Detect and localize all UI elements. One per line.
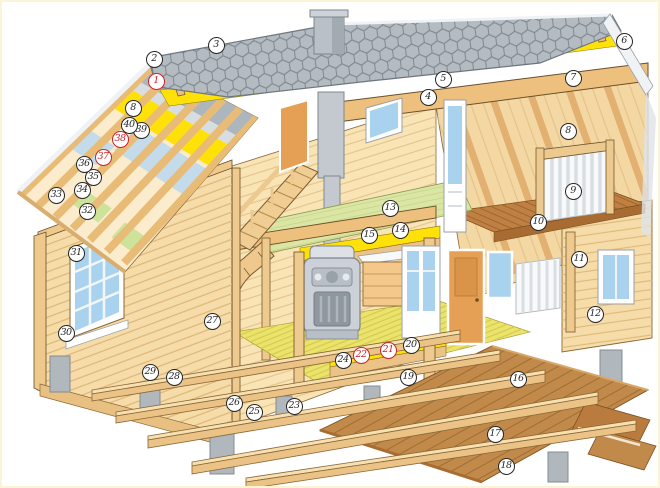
callout-marker-7: 7 bbox=[565, 70, 582, 87]
callout-marker-5: 5 bbox=[435, 71, 452, 88]
callout-marker-6: 6 bbox=[616, 33, 633, 50]
callout-marker-14: 14 bbox=[392, 222, 409, 239]
callout-marker-40: 40 bbox=[121, 117, 138, 134]
callout-marker-2: 2 bbox=[146, 51, 163, 68]
callout-marker-11: 11 bbox=[571, 251, 588, 268]
callout-marker-3: 3 bbox=[208, 37, 225, 54]
screenshot-root: 1234567889101112131415161718192021222324… bbox=[0, 0, 660, 488]
callout-marker-26: 26 bbox=[226, 395, 243, 412]
callout-marker-30: 30 bbox=[58, 325, 75, 342]
callout-marker-19: 19 bbox=[400, 369, 417, 386]
callout-marker-24: 24 bbox=[335, 352, 352, 369]
callout-marker-31: 31 bbox=[68, 245, 85, 262]
callout-marker-10: 10 bbox=[530, 214, 547, 231]
callout-marker-8: 8 bbox=[560, 123, 577, 140]
callout-marker-12: 12 bbox=[587, 306, 604, 323]
callout-marker-17: 17 bbox=[487, 426, 504, 443]
callout-layer: 1234567889101112131415161718192021222324… bbox=[0, 0, 660, 488]
callout-marker-18: 18 bbox=[498, 458, 515, 475]
callout-marker-28: 28 bbox=[166, 369, 183, 386]
callout-marker-36: 36 bbox=[76, 156, 93, 173]
callout-marker-21: 21 bbox=[380, 342, 397, 359]
callout-marker-22: 22 bbox=[353, 347, 370, 364]
callout-marker-20: 20 bbox=[403, 337, 420, 354]
callout-marker-25: 25 bbox=[246, 404, 263, 421]
callout-marker-4: 4 bbox=[420, 89, 437, 106]
callout-marker-33: 33 bbox=[48, 187, 65, 204]
callout-marker-37: 37 bbox=[95, 149, 112, 166]
callout-marker-9: 9 bbox=[565, 183, 582, 200]
callout-marker-27: 27 bbox=[204, 313, 221, 330]
callout-marker-23: 23 bbox=[286, 398, 303, 415]
callout-marker-13: 13 bbox=[382, 200, 399, 217]
callout-marker-32: 32 bbox=[79, 203, 96, 220]
callout-marker-29: 29 bbox=[142, 364, 159, 381]
callout-marker-1: 1 bbox=[148, 73, 165, 90]
callout-marker-15: 15 bbox=[361, 227, 378, 244]
callout-marker-16: 16 bbox=[510, 371, 527, 388]
callout-marker-8: 8 bbox=[125, 100, 142, 117]
